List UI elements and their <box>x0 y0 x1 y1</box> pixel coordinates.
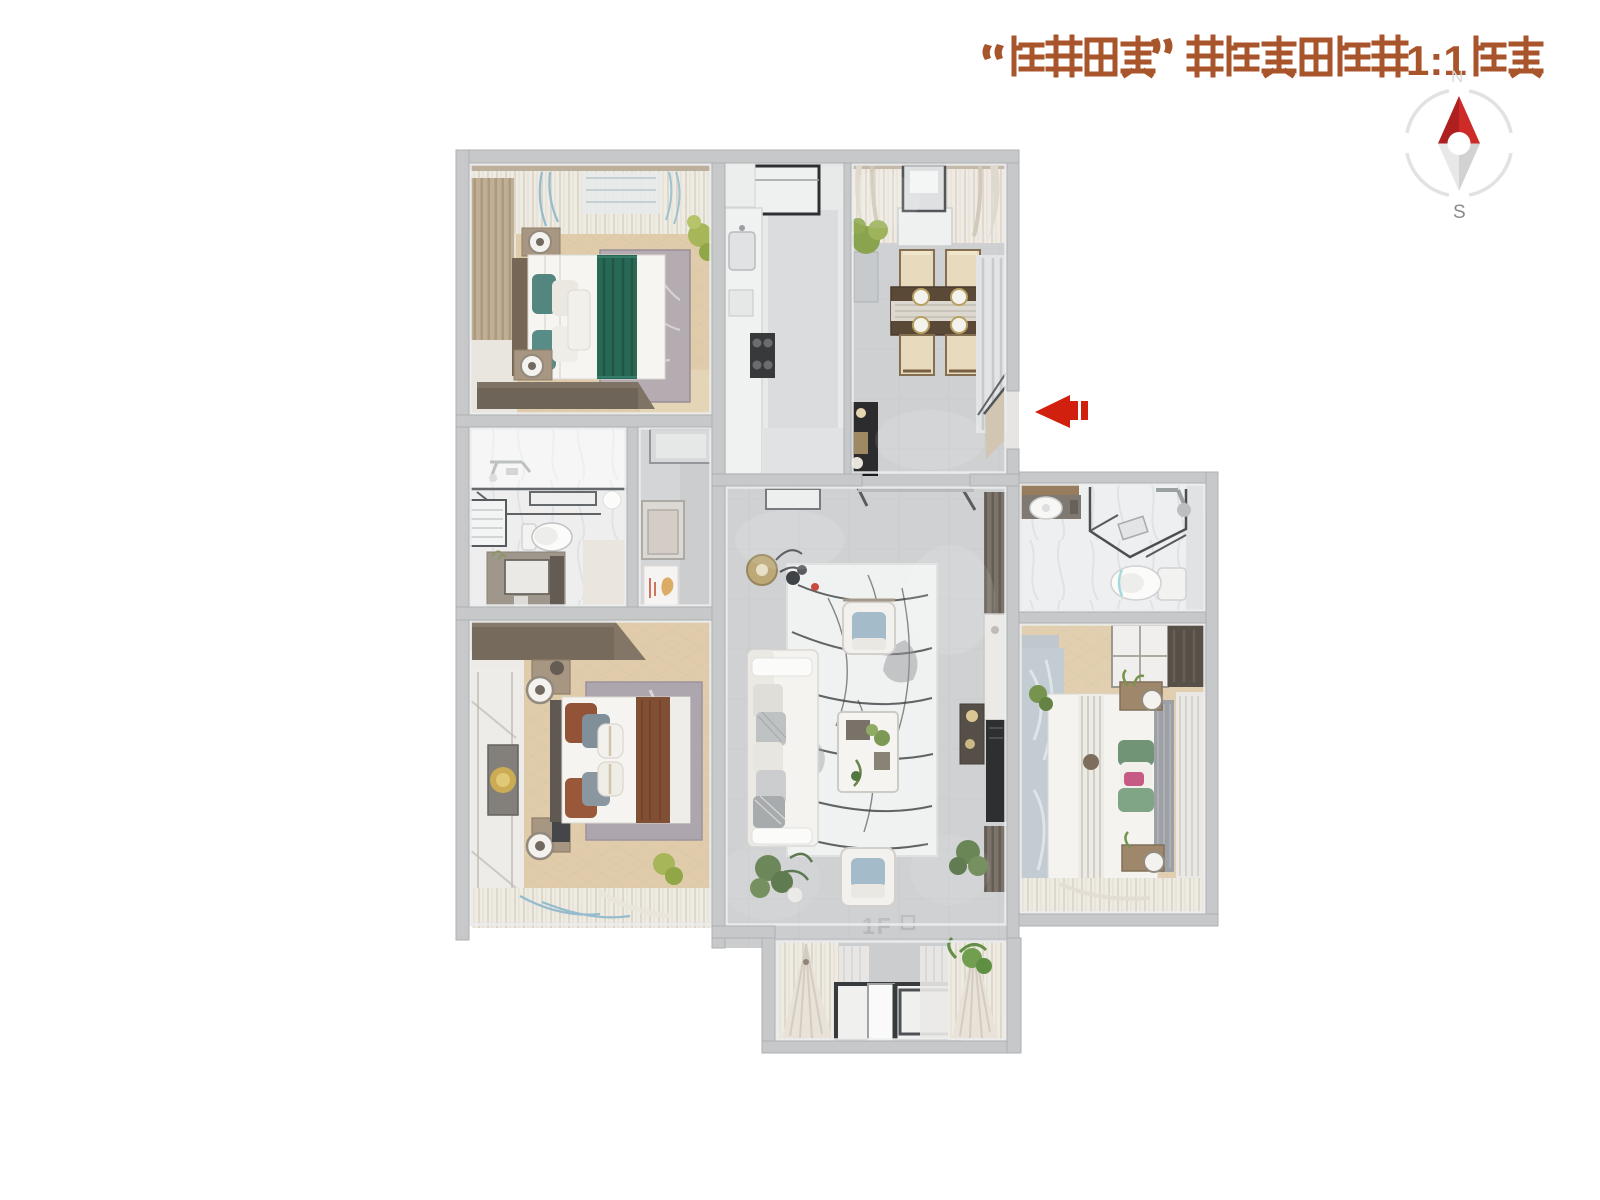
svg-text:S: S <box>1453 202 1466 223</box>
svg-text:N: N <box>1451 67 1463 86</box>
